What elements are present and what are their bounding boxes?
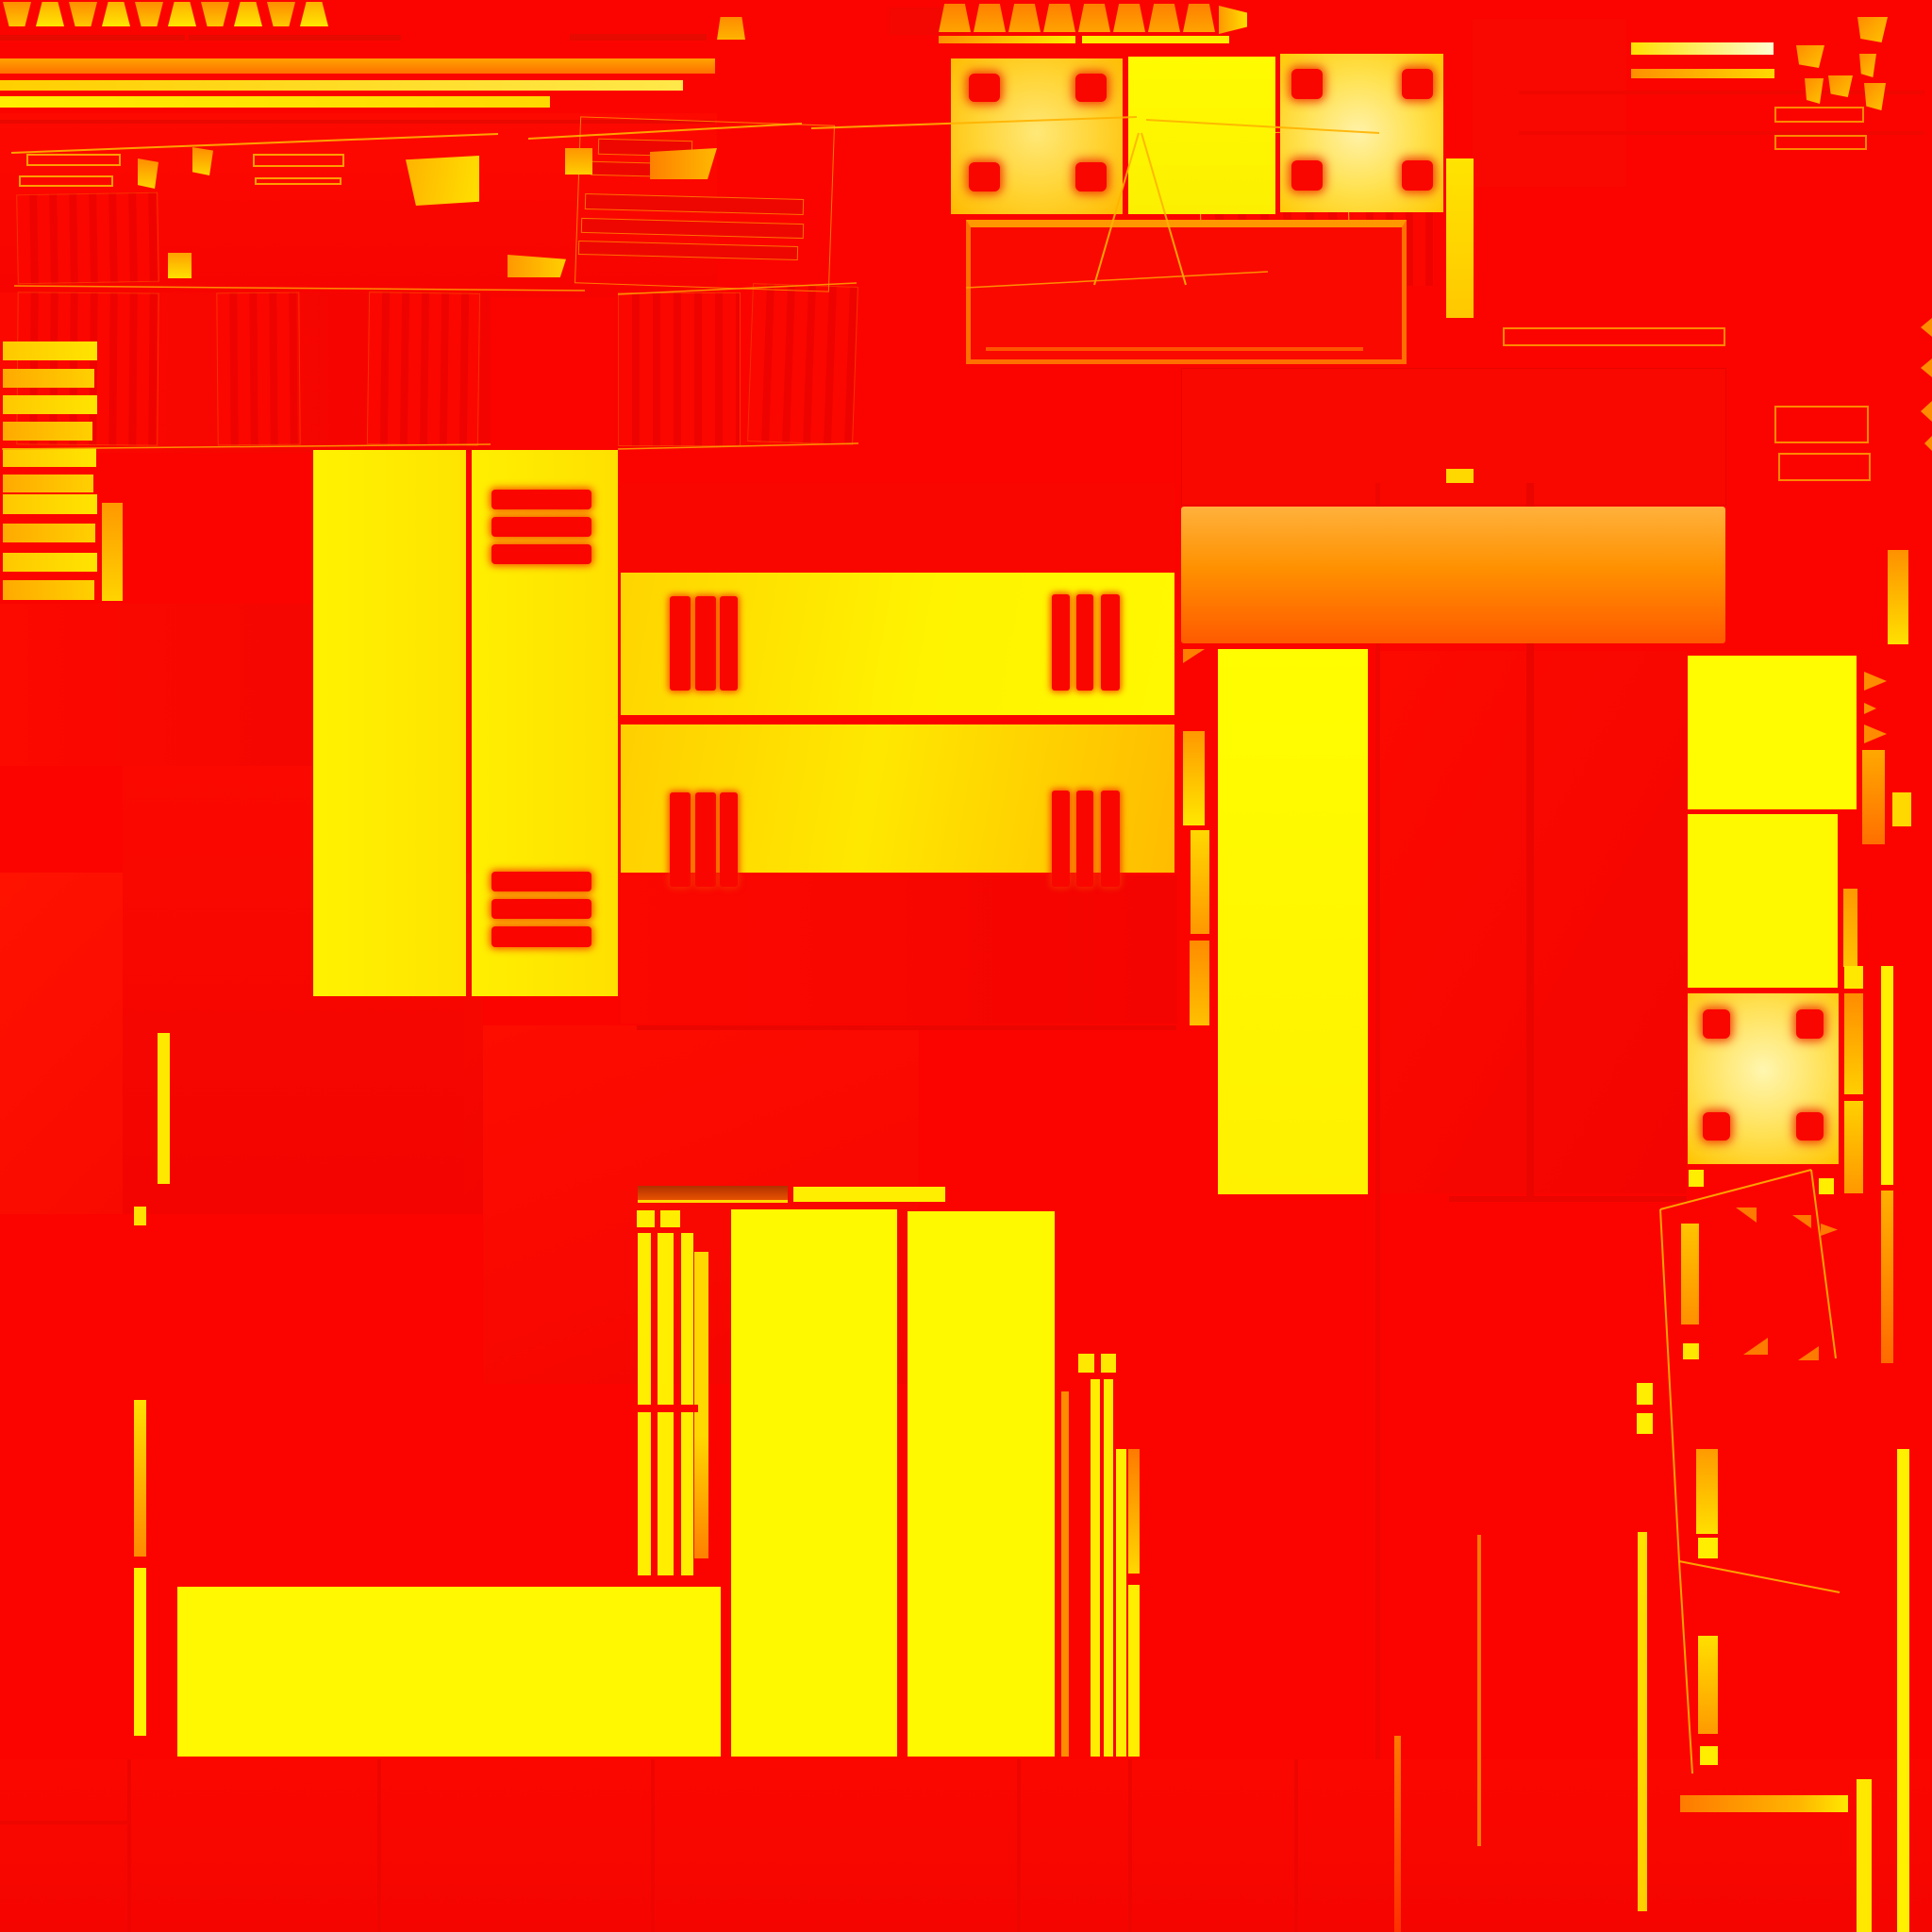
- orange-gradient-band: [1181, 507, 1725, 643]
- zigzag-a-8: [234, 2, 262, 26]
- hairline-v-right: [1375, 483, 1380, 1759]
- door-right-stripe-3: [1116, 1449, 1126, 1757]
- br-quad-tail: [1679, 1561, 1692, 1774]
- dice-c-pip-3: [1291, 160, 1323, 191]
- br-triangle-3: [1821, 1224, 1838, 1236]
- hairline-bottom-v4: [1017, 1759, 1021, 1932]
- hairline-bottom-v1: [127, 1759, 131, 1932]
- br-triangle-2: [1792, 1215, 1811, 1228]
- outlined-bar-6: [1774, 107, 1864, 123]
- door-sq-1: [637, 1210, 655, 1227]
- door-right-stripe-4-fade: [1128, 1449, 1140, 1574]
- door-sq-2: [660, 1210, 680, 1227]
- zigzag-b-wedge: [1219, 6, 1247, 34]
- bg-left-column: [0, 604, 311, 766]
- locker-column-1: [313, 450, 466, 996]
- hairline-orange-br: [1394, 1736, 1401, 1932]
- br-square-4: [1637, 1413, 1653, 1434]
- wedge-8: [717, 17, 745, 40]
- right-col-bar-8: [1881, 966, 1893, 1185]
- right-col-bar-7: [1844, 1101, 1863, 1193]
- dice-a-pip-3: [969, 162, 1000, 192]
- zigzag-b-4: [1043, 4, 1075, 32]
- stripe-topleft-yellow-1: [0, 80, 683, 91]
- wedge-1: [138, 158, 158, 189]
- dice-d-pip-3: [1703, 1112, 1730, 1141]
- thin-bar-left-2: [134, 1400, 146, 1557]
- vent2-slatR-1: [1052, 791, 1070, 887]
- zigzag-b-8: [1183, 4, 1215, 32]
- outlined-bar-1: [26, 154, 121, 166]
- right-col-bar-6: [1844, 993, 1863, 1094]
- door-left: [731, 1209, 897, 1757]
- outlined-bar-2: [19, 175, 113, 187]
- left-stack-bar-7: [3, 494, 97, 514]
- thin-bar-left-3: [134, 1568, 146, 1736]
- mid-strip-triangle: [1183, 649, 1205, 663]
- yellow-slab: [177, 1587, 721, 1757]
- outlined-bar-7: [1774, 135, 1867, 150]
- wedge-tr-3: [1859, 54, 1876, 77]
- outlined-bar-4: [255, 177, 341, 185]
- outlined-bar-3: [253, 154, 344, 167]
- left-stack-bar-3: [3, 395, 97, 414]
- hairline-orange-v: [1477, 1535, 1481, 1846]
- br-horizontal-fade-bar: [1680, 1795, 1848, 1812]
- dice-a-pip-4: [1075, 162, 1107, 192]
- stripe-under-zigzag-2: [1082, 36, 1229, 43]
- hairline-bottom-v2: [377, 1759, 381, 1932]
- wedge-2: [192, 147, 213, 175]
- left-stack-bar-5: [3, 448, 96, 467]
- zigzag-a-4: [102, 2, 130, 26]
- left-stack-bar-9: [3, 553, 97, 572]
- zigzag-b-2: [974, 4, 1006, 32]
- right-col-tri-1: [1864, 672, 1887, 691]
- hairline-bottom-v5: [1128, 1759, 1132, 1932]
- wedge-tr-2: [1796, 45, 1824, 68]
- right-yellow-square-1: [1688, 656, 1857, 809]
- left-stack-bar-4: [3, 422, 92, 441]
- thin-bar-left-1: [134, 1207, 146, 1225]
- zigzag-a-7: [201, 2, 229, 26]
- bg-center-panel-2: [621, 875, 1177, 1024]
- door-right-stripe-5: [1128, 1585, 1140, 1757]
- br-square-3: [1637, 1383, 1653, 1405]
- zigzag-b-6: [1113, 4, 1145, 32]
- vent2-slatR-3: [1101, 791, 1120, 887]
- door-header-hairline: [638, 1200, 788, 1203]
- wedge-5: [650, 148, 717, 179]
- door-right-stripe-orange: [1061, 1391, 1069, 1757]
- wedge-4: [565, 148, 592, 175]
- stripe-topright-2: [1631, 69, 1774, 78]
- dice-panel-b: [1128, 57, 1275, 214]
- right-col-tri-2: [1864, 703, 1876, 714]
- outlined-bar-5: [1503, 327, 1725, 346]
- left-stack-bar-6: [3, 475, 93, 492]
- orange-border-box-innerline: [986, 347, 1363, 351]
- dice-a-pip-1: [969, 74, 1000, 102]
- dice-d-pip-1: [1703, 1009, 1730, 1039]
- wedge-3: [406, 156, 479, 206]
- right-col-bar-1: [1888, 550, 1908, 644]
- vent1-slatL-3: [720, 596, 738, 691]
- door-right: [908, 1211, 1055, 1757]
- bg-vent-top-band: [621, 483, 1174, 573]
- zigzag-b-5: [1078, 4, 1110, 32]
- br-orange-bar-2: [1698, 1636, 1718, 1734]
- br-square-6: [1819, 1178, 1834, 1194]
- mid-strip-2: [1191, 830, 1209, 934]
- door-right-stripe-2: [1104, 1379, 1113, 1757]
- right-col-tri-3: [1864, 724, 1887, 743]
- edge-triangle-4: [1924, 436, 1932, 451]
- br-triangle-4: [1743, 1338, 1768, 1355]
- left-stack-bar-1: [3, 341, 97, 360]
- striped-panel-1: [16, 192, 159, 285]
- br-triangle-5: [1798, 1346, 1819, 1360]
- br-triangle-1: [1736, 1207, 1757, 1223]
- vent2-slatL-2: [695, 792, 716, 887]
- dice-c-pip-2: [1402, 69, 1433, 99]
- stripe-topleft-orange: [0, 58, 715, 74]
- door-header-dark: [638, 1186, 788, 1200]
- br-orange-bar-1: [1696, 1449, 1718, 1534]
- striped-panel-5: [618, 292, 741, 446]
- hairline-bottom-v6: [1294, 1759, 1298, 1932]
- door-right-stripe-1: [1091, 1379, 1100, 1757]
- wedge-tr-6: [1864, 83, 1886, 110]
- vent1-slatR-3: [1101, 594, 1120, 691]
- zigzag-a-1: [3, 2, 31, 26]
- hairline-center: [637, 1025, 1176, 1030]
- yellow-block-small: [1446, 469, 1474, 483]
- door-right-sq-2: [1101, 1354, 1116, 1373]
- striped-panel-3: [216, 292, 300, 446]
- orange-border-box: [966, 220, 1407, 364]
- vent2-slatR-2: [1076, 791, 1093, 887]
- br-square-1: [1698, 1538, 1718, 1558]
- hairline-right-mid: [1449, 1196, 1687, 1202]
- left-stack-vbar: [102, 503, 123, 601]
- edge-triangle-3: [1921, 401, 1932, 422]
- right-col-bar-5: [1844, 966, 1863, 989]
- left-stack-bar-10: [3, 580, 94, 600]
- mid-strip-3: [1190, 941, 1209, 1025]
- thin-bar-left-4: [158, 1033, 170, 1184]
- stripe-topright-1: [1631, 42, 1774, 55]
- door-stripe-gap: [632, 1405, 698, 1412]
- hairline-bottom-h: [0, 1821, 127, 1824]
- vent1-slatR-1: [1052, 594, 1070, 691]
- stripe-topleft-yellow-2: [0, 96, 550, 108]
- zigzag-a-3: [69, 2, 97, 26]
- tall-yellow-column: [1218, 649, 1368, 1194]
- zigzag-a-9: [267, 2, 295, 26]
- left-stack-bar-8: [3, 524, 95, 542]
- dice-c-pip-1: [1291, 69, 1323, 99]
- right-col-bar-4: [1843, 889, 1857, 967]
- mid-strip-1: [1183, 731, 1205, 825]
- br-quad-left: [1660, 1209, 1679, 1561]
- bg-box-above-band: [1181, 368, 1726, 506]
- right-col-bar-2: [1862, 750, 1885, 844]
- locker2-bar-top-2: [491, 517, 591, 537]
- vent2-slatL-3: [720, 792, 738, 887]
- br-thin-bar-long: [1638, 1532, 1647, 1911]
- dice-d-pip-2: [1796, 1009, 1824, 1039]
- wedge-tr-4: [1805, 78, 1824, 104]
- striped-panel-6: [747, 283, 858, 445]
- door-header-yellow: [793, 1187, 945, 1202]
- wedge-7: [168, 253, 192, 278]
- zigzag-a-6: [168, 2, 196, 26]
- zigzag-a-2: [36, 2, 64, 26]
- locker2-bar-top-1: [491, 490, 591, 509]
- hairline-tr-1: [1519, 91, 1924, 94]
- hairline-top-2: [189, 35, 401, 41]
- hairline-top-1: [0, 35, 185, 41]
- zigzag-b-3: [1008, 4, 1041, 32]
- locker2-bar-top-3: [491, 544, 591, 564]
- br-quad-bottom: [1679, 1561, 1840, 1592]
- right-col-bar-3: [1892, 792, 1911, 826]
- edge-triangle-1: [1921, 318, 1932, 337]
- stripe-under-zigzag-1: [939, 36, 1075, 43]
- br-square-5: [1689, 1170, 1704, 1187]
- wedge-tr-1: [1857, 17, 1888, 42]
- locker2-bar-bottom-3: [491, 926, 591, 947]
- zigzag-a-10: [300, 2, 328, 26]
- dice-c-pip-4: [1402, 160, 1433, 191]
- vent1-slatR-2: [1076, 594, 1093, 691]
- outlined-bar-8: [1774, 406, 1869, 443]
- br-orange-bar-3: [1681, 1224, 1699, 1324]
- striped-panel-4: [367, 291, 480, 446]
- locker2-bar-bottom-2: [491, 899, 591, 919]
- br-square-7: [1683, 1343, 1699, 1359]
- right-yellow-square-2: [1688, 814, 1838, 988]
- vent1-slatL-2: [695, 596, 716, 691]
- bg-top-right-box: [1473, 19, 1626, 187]
- yellow-strip-right-of-dice: [1446, 158, 1474, 318]
- right-col-bar-10: [1897, 1449, 1909, 1932]
- zigzag-a-5: [135, 2, 163, 26]
- br-square-2: [1700, 1746, 1718, 1765]
- locker2-bar-bottom-1: [491, 872, 591, 891]
- edge-triangle-2: [1921, 358, 1932, 377]
- texture-atlas: [0, 0, 1932, 1932]
- left-stack-bar-2: [3, 369, 94, 388]
- hairline-top-3: [570, 34, 707, 41]
- dice-d-pip-4: [1796, 1112, 1824, 1141]
- hairline-bottom-v3: [651, 1759, 655, 1932]
- door-right-sq-1: [1078, 1354, 1094, 1373]
- right-col-bar-9: [1881, 1191, 1893, 1363]
- vent2-slatL-1: [670, 792, 691, 887]
- vent1-slatL-1: [670, 596, 691, 691]
- dice-a-pip-2: [1075, 74, 1107, 102]
- br-quad-right: [1811, 1170, 1836, 1358]
- outlined-bar-9: [1778, 453, 1871, 481]
- zigzag-b-7: [1148, 4, 1180, 32]
- right-col-bar-11: [1857, 1779, 1872, 1932]
